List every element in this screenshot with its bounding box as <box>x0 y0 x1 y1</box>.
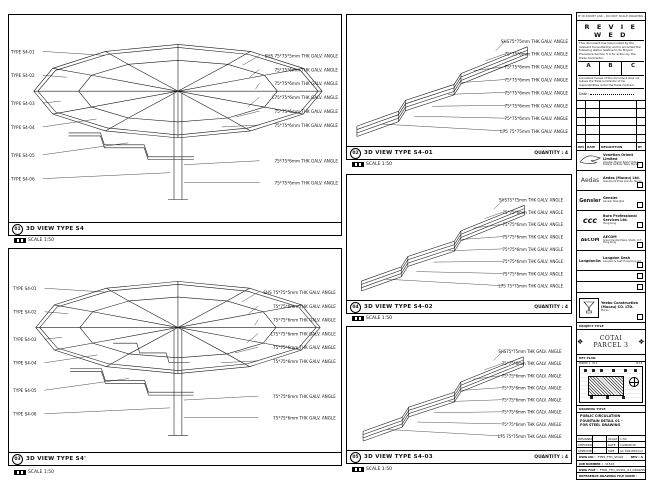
checkbox[interactable] <box>637 242 643 248</box>
contractor-trophy-logo <box>579 298 599 318</box>
detail-bubble: 01 <box>12 224 23 235</box>
angle-annotation: 75*75*6mm THK GALV. ANGLE <box>502 422 562 427</box>
detail-bubble: 02 <box>350 148 361 159</box>
date-value: 14/MAR/16 <box>619 442 645 447</box>
description-col-header: DESCRIPTION <box>600 143 637 150</box>
view-03-caption: 03 3D VIEW TYPE S4' <box>9 452 341 465</box>
aedas-logo: Aedas <box>579 177 601 184</box>
key-plan-scale-note: N.T.S. <box>636 362 643 365</box>
plan-block <box>584 369 587 372</box>
scale-text: SCALE 1:50 <box>28 470 54 475</box>
angle-annotation: L75 75*75mm THK GALV. ANGLE <box>499 284 564 289</box>
plan-block <box>600 369 603 372</box>
consultant-row-venetian: Venetian Orient Limited Venetian Macao R… <box>577 151 645 171</box>
detail-bubble: 04 <box>350 302 361 313</box>
project-title-label: PROJECT TITLE <box>577 323 645 330</box>
plan-block <box>624 369 627 372</box>
checkbox[interactable] <box>637 314 643 320</box>
designed-label: DESIGNED <box>577 436 593 441</box>
drawing-title-line: FOR STEEL DRAWING <box>580 423 642 428</box>
plan-block <box>590 396 593 399</box>
reviewed-note-text: Consultant review of this document does … <box>578 76 644 89</box>
quantity-note: QUANTITY : 4 <box>534 305 568 310</box>
angle-annotation: 75*75*6mm THK GALV. ANGLE <box>273 318 336 323</box>
angle-annotation: L75 75*75mm THK GALV. ANGLE <box>498 434 562 439</box>
angle-annotation: SHS 75*75*5mm THK GALV. ANGLE <box>263 290 336 295</box>
scale-text: SCALE 1:50 <box>28 238 54 243</box>
ccc-monogram-logo: ccc <box>579 216 601 225</box>
dwg-no-value: FTN5_FTD_S5401 <box>598 455 624 459</box>
contractor-address: Macau <box>601 310 643 313</box>
scale-note: SCALE 1:50 <box>352 467 392 472</box>
angle-annotation: 75*75*6mm THK GALV. ANGLE <box>275 123 339 128</box>
scale-bar-icon <box>14 470 26 475</box>
approval-info-grid: DESIGNED SCALE 1:50 CHECKED - DATE 14/MA… <box>577 436 645 454</box>
drawing-title-section: DRAWING TITLE PUBLIC CIRCULATION FOUNTAI… <box>577 406 645 436</box>
view-panel-05: SHS75*75mm THK GALV. ANGLE 75*75*6mm THK… <box>346 326 572 464</box>
revision-table: REV DATE DESCRIPTION BY <box>577 101 645 151</box>
view-panel-01: TYPE S4-01 TYPE S4-02 TYPE S4-03 TYPE S4… <box>8 14 342 236</box>
column-ornament-icon: ❖ <box>577 338 584 346</box>
angle-annotation: SHS75*75mm THK GALV. ANGLE <box>498 349 562 354</box>
radial-structure-drawing: TYPE S4-01 TYPE S4-02 TYPE S4-03 TYPE S4… <box>9 249 341 452</box>
angle-annotation: 75*75*6mm THK GALV. ANGLE <box>503 210 564 215</box>
size-value: A1 594x841mm <box>619 448 645 453</box>
radial-structure-drawing: TYPE S4-01 TYPE S4-02 TYPE S4-03 TYPE S4… <box>9 15 341 222</box>
detail-bubble: 03 <box>12 454 23 465</box>
key-plan-tag: LP 2 <box>592 362 597 365</box>
angle-annotation: 75*75*6mm THK GALV. ANGLE <box>502 385 562 390</box>
scale-text: SCALE 1:50 <box>366 162 392 167</box>
aecom-logo: AECOM <box>579 238 601 243</box>
view-02-caption: 02 3D VIEW TYPE S4-01 QUANTITY : 4 <box>347 146 571 159</box>
angle-annotation: 75*75*6mm THK GALV. ANGLE <box>503 222 564 227</box>
status-abc-grid: A B C <box>578 62 644 76</box>
quantity-note: QUANTITY : 4 <box>534 151 568 156</box>
angle-annotation: 75*75*6mm THK GALV. ANGLE <box>273 416 336 421</box>
scale-value: 1:50 <box>619 436 645 441</box>
langdonseah-logo: LangdonSeah <box>579 259 601 263</box>
view-title: 3D VIEW TYPE S4-03 <box>364 454 433 460</box>
status-option-c[interactable]: C <box>622 62 644 75</box>
reference-label: REFERENCE DRAWING FILE NAME : <box>579 474 637 478</box>
member-type-label: TYPE S4-04 <box>10 125 35 130</box>
member-type-label: TYPE S4-05 <box>10 153 35 158</box>
consultant-row-aecom: AECOM AECOM Grand Central Plaza, Shatin,… <box>577 231 645 251</box>
blank-consultant-row <box>577 271 645 282</box>
checked-label: CHECKED <box>577 442 593 447</box>
reviewed-stamp: R E V I E W E D This document has been n… <box>577 21 645 101</box>
scale-text: SCALE 1:50 <box>366 467 392 472</box>
consultant-row-aedas: Aedas Aedas (Macau) Ltd. Avenida da Prai… <box>577 171 645 191</box>
angle-annotation: 75*75*6mm THK GALV. ANGLE <box>505 90 569 95</box>
angle-annotation: 75*75*6mm THK GALV. ANGLE <box>502 398 562 403</box>
angle-annotation: 75*75*6mm THK GALV. ANGLE <box>505 116 569 121</box>
angle-annotation: L75*75*6mm THK GALV. ANGLE <box>272 95 338 100</box>
title-block: IF IN DOUBT ASK - DO NOT SCALE DRAWING -… <box>576 12 646 480</box>
scale-label: SCALE <box>607 436 619 441</box>
angle-annotation: SHS75*75mm THK GALV. ANGLE <box>501 39 569 44</box>
angle-annotation: 75*75*6mm THK GALV. ANGLE <box>503 234 564 239</box>
project-name: COTAI PARCEL 3 <box>587 335 635 349</box>
dwg-file-label: DWG FILE : <box>579 468 598 472</box>
stepped-angle-drawing: SHS75*75mm THK GALV. ANGLE 75*75*6mm THK… <box>347 15 571 146</box>
angle-annotation: SHS 75*75*5mm THK GALV. ANGLE <box>265 53 339 58</box>
revision-row <box>577 118 645 126</box>
scale-bar-icon <box>352 316 364 321</box>
venetian-eagle-logo <box>579 151 601 170</box>
angle-annotation: 75*75*6mm THK GALV. ANGLE <box>275 67 339 72</box>
angle-annotation: L75 75*75mm THK GALV. ANGLE <box>500 129 568 134</box>
checkbox[interactable] <box>637 182 643 188</box>
scale-bar-icon <box>352 162 364 167</box>
view-04-caption: 04 3D VIEW TYPE S4-02 QUANTITY : 4 <box>347 300 571 313</box>
angle-annotation: 75*75*6mm THK GALV. ANGLE <box>502 373 562 378</box>
drawing-title-label: DRAWING TITLE <box>577 406 645 413</box>
date-col-header: DATE <box>586 143 600 150</box>
contractor-row: Yeebo Construction (Macau) CO. LTD. Maca… <box>577 293 645 323</box>
view-05-caption: 05 3D VIEW TYPE S4-03 QUANTITY : 4 <box>347 450 571 463</box>
revision-row <box>577 135 645 143</box>
angle-annotation: L75*75*6mm THK GALV. ANGLE <box>271 331 336 336</box>
blank-consultant-row <box>577 282 645 293</box>
rev-value: REV : A <box>631 455 643 459</box>
scale-note: SCALE 1:50 <box>352 162 392 167</box>
angle-annotation: 75*75*6mm THK GALV. ANGLE <box>275 181 339 186</box>
project-title-section: PROJECT TITLE ❖ COTAI PARCEL 3 ❖ <box>577 323 645 355</box>
approved-label: APPROVED <box>577 448 593 453</box>
scale-note: SCALE 1:50 <box>352 316 392 321</box>
key-plan-tag: PARCEL 1 <box>579 362 590 365</box>
view-01-drawing-area: TYPE S4-01 TYPE S4-02 TYPE S4-03 TYPE S4… <box>9 15 341 222</box>
column-ornament-icon: ❖ <box>638 338 645 346</box>
member-type-label: TYPE S4-03 <box>12 337 37 342</box>
consultant-row-gensler: Gensler Gensler Gensler Shanghai <box>577 191 645 211</box>
member-type-label: TYPE S4-02 <box>12 310 37 315</box>
stamp-date-row: Date : <box>578 89 644 97</box>
stepped-angle-drawing: SHS75*75mm THK GALV. ANGLE 75*75*6mm THK… <box>347 327 571 450</box>
plan-block <box>612 369 615 372</box>
angle-annotation: 75*75*6mm THK GALV. ANGLE <box>503 259 564 264</box>
gensler-logo: Gensler <box>579 198 601 204</box>
scale-note: SCALE 1:50 <box>14 238 54 243</box>
view-title: 3D VIEW TYPE S4-01 <box>364 150 433 156</box>
view-title: 3D VIEW TYPE S4 <box>26 226 84 232</box>
consultant-row-langdonseah: LangdonSeah Langdon Seah Langdon & Seah … <box>577 251 645 271</box>
member-type-label: TYPE S4-05 <box>12 388 37 393</box>
plan-block <box>634 369 637 372</box>
compass-crosshair-icon <box>629 377 639 387</box>
date-fill-line[interactable] <box>590 90 634 95</box>
reviewed-body-text: This document has been noted by the rele… <box>578 41 644 62</box>
approved-value: - <box>593 448 607 453</box>
highlighted-parcel-area <box>588 376 624 396</box>
view-05-drawing-area: SHS75*75mm THK GALV. ANGLE 75*75*6mm THK… <box>347 327 571 450</box>
view-title: 3D VIEW TYPE S4' <box>26 456 86 462</box>
reference-row: REFERENCE DRAWING FILE NAME : <box>577 473 645 479</box>
revision-row <box>577 109 645 117</box>
member-type-label: TYPE S4-06 <box>12 412 37 417</box>
job-number-value: 31526 <box>605 462 615 466</box>
angle-annotation: 75*75*6mm THK GALV. ANGLE <box>505 65 569 70</box>
scale-bar-icon <box>14 238 26 243</box>
member-type-label: TYPE S4-06 <box>10 177 35 182</box>
designed-value <box>593 436 607 441</box>
view-panel-02: SHS75*75mm THK GALV. ANGLE 75*75*6mm THK… <box>346 14 572 160</box>
angle-annotation: 75*75*6mm THK GALV. ANGLE <box>502 410 562 415</box>
checkbox[interactable] <box>637 222 643 228</box>
angle-annotation: 75*75*6mm THK GALV. ANGLE <box>505 77 569 82</box>
rev-col-header: REV <box>577 143 586 150</box>
dwg-number-row: DWG NO : FTN5_FTD_S5401 REV : A <box>577 454 645 461</box>
member-type-label: TYPE S4-01 <box>12 286 37 291</box>
key-plan-section: KEY PLAN PARCEL 1 LP 2 N.T.S. <box>577 355 645 406</box>
size-label: SIZE <box>607 448 619 453</box>
status-option-b[interactable]: B <box>600 62 622 75</box>
angle-annotation: 75*75*6mm THK GALV. ANGLE <box>275 159 339 164</box>
key-plan-map <box>579 366 643 403</box>
consultant-row-buro: ccc Buro Professional Services Ltd. Hong… <box>577 211 645 231</box>
reviewed-title: R E V I E W E D <box>578 22 644 41</box>
angle-annotation: SHS75*75mm THK GALV. ANGLE <box>499 198 564 203</box>
checkbox[interactable] <box>637 284 643 290</box>
plan-block <box>592 369 595 372</box>
sheet-notes-strip: IF IN DOUBT ASK - DO NOT SCALE DRAWING -… <box>577 13 645 21</box>
revision-table-header: REV DATE DESCRIPTION BY <box>577 143 645 150</box>
angle-annotation: 75*75*6mm THK GALV. ANGLE <box>275 81 339 86</box>
scale-bar-icon <box>352 467 364 472</box>
checkbox[interactable] <box>637 262 643 268</box>
stepped-angle-drawing: SHS75*75mm THK GALV. ANGLE 75*75*6mm THK… <box>347 175 571 300</box>
angle-annotation: 75*75*6mm THK GALV. ANGLE <box>505 103 569 108</box>
dwg-file-value: FTN5_FTD_S5401_03_DRAWING.dwg <box>600 468 645 472</box>
date-label: DATE <box>607 442 619 447</box>
job-number-label: JOB NUMBER : <box>579 462 603 466</box>
angle-annotation: 75*75*6mm THK GALV. ANGLE <box>275 109 339 114</box>
checkbox[interactable] <box>637 273 643 279</box>
dwg-no-label: DWG NO : <box>579 455 596 459</box>
revision-row <box>577 126 645 134</box>
notes-text: IF IN DOUBT ASK - DO NOT SCALE DRAWING -… <box>578 15 645 18</box>
member-type-label: TYPE S4-03 <box>10 101 35 106</box>
view-02-drawing-area: SHS75*75mm THK GALV. ANGLE 75*75*6mm THK… <box>347 15 571 146</box>
checkbox[interactable] <box>637 202 643 208</box>
angle-annotation: 75*75*6mm THK GALV. ANGLE <box>273 359 336 364</box>
status-option-a[interactable]: A <box>578 62 600 75</box>
view-04-drawing-area: SHS75*75mm THK GALV. ANGLE 75*75*6mm THK… <box>347 175 571 300</box>
date-label: Date : <box>579 92 589 96</box>
scale-note: SCALE 1:50 <box>14 470 54 475</box>
angle-annotation: 75*75*6mm THK GALV. ANGLE <box>273 304 336 309</box>
member-type-label: TYPE S4-04 <box>12 361 37 366</box>
angle-annotation: 75*75*6mm THK GALV. ANGLE <box>503 271 564 276</box>
angle-annotation: 75*75*6mm THK GALV. ANGLE <box>503 247 564 252</box>
scale-text: SCALE 1:50 <box>366 316 392 321</box>
member-type-label: TYPE S4-01 <box>10 49 35 54</box>
view-01-caption: 01 3D VIEW TYPE S4 <box>9 222 341 235</box>
view-title: 3D VIEW TYPE S4-02 <box>364 304 433 310</box>
revision-row <box>577 101 645 109</box>
view-panel-04: SHS75*75mm THK GALV. ANGLE 75*75*6mm THK… <box>346 174 572 314</box>
key-plan-label: KEY PLAN <box>577 355 645 362</box>
by-col-header: BY <box>637 143 645 150</box>
plan-block <box>622 396 625 399</box>
drawing-sheet: TYPE S4-01 TYPE S4-02 TYPE S4-03 TYPE S4… <box>0 0 650 488</box>
view-03-drawing-area: TYPE S4-01 TYPE S4-02 TYPE S4-03 TYPE S4… <box>9 249 341 452</box>
checkbox[interactable] <box>637 162 643 168</box>
angle-annotation: 75*75*6mm THK GALV. ANGLE <box>502 361 562 366</box>
angle-annotation: 75*75*6mm THK GALV. ANGLE <box>505 52 569 57</box>
plan-block <box>606 396 609 399</box>
angle-annotation: 75*75*6mm THK GALV. ANGLE <box>273 345 336 350</box>
quantity-note: QUANTITY : 4 <box>534 455 568 460</box>
view-panel-03: TYPE S4-01 TYPE S4-02 TYPE S4-03 TYPE S4… <box>8 248 342 466</box>
angle-annotation: 75*75*6mm THK GALV. ANGLE <box>273 394 336 399</box>
member-type-label: TYPE S4-02 <box>10 73 35 78</box>
checked-value: - <box>593 442 607 447</box>
detail-bubble: 05 <box>350 452 361 463</box>
